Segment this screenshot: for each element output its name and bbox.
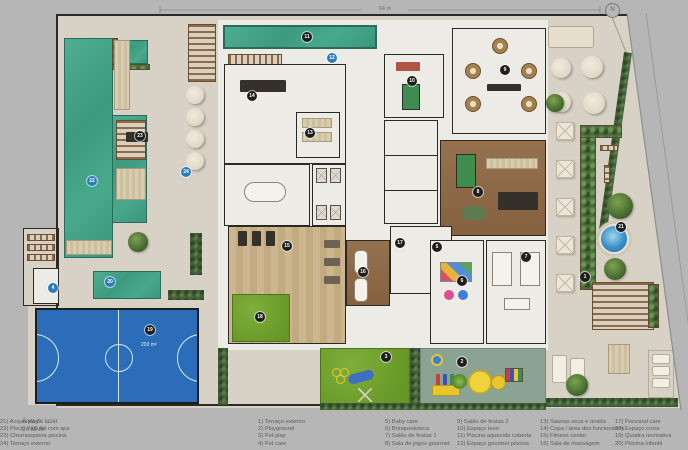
legend-column: 21) Acqua play22) Piscina adulto com spa…	[0, 419, 70, 448]
hedge-court-side	[218, 348, 228, 405]
lounger-bottom-1	[552, 355, 567, 383]
legend-item-22: 22) Piscina adulto com spa	[0, 426, 70, 433]
plan-marker-5: 5	[432, 242, 442, 252]
play-slide-tub	[491, 375, 506, 390]
plan-marker-22: 22	[87, 176, 97, 186]
foosball-table	[396, 62, 420, 71]
square-umbrella-4	[556, 236, 574, 254]
tree-terrace-big	[607, 193, 633, 219]
terrace-bench-1	[600, 145, 618, 151]
legend-column: 5) Baby care6) Brinquedoteca7) Salão de …	[385, 419, 450, 448]
legend-item-24: 24) Terraço externo	[0, 441, 70, 448]
plan-marker-23: 23	[135, 131, 145, 141]
locker-divider-1	[384, 155, 438, 156]
legend-item-16: 16) Sala de massagem	[540, 441, 624, 448]
treadmill-2	[252, 231, 261, 246]
legend-item-10: 10) Espaço teen	[457, 426, 531, 433]
massage-tub-2	[354, 278, 368, 302]
legend-item-20: 20) Piscina infantil	[615, 441, 671, 448]
plan-marker-13: 13	[305, 128, 315, 138]
elevator-shaft-3	[316, 205, 327, 220]
umbrella-1	[186, 86, 204, 104]
party1-table-3	[504, 298, 530, 310]
legend-item-17: 17) Personal care	[615, 419, 671, 426]
terrace-pergola	[592, 282, 654, 330]
round-table-4	[465, 96, 481, 112]
lounger-row-top	[114, 40, 130, 110]
legend-column: 17) Personal care18) Espaço cross19) Qua…	[615, 419, 671, 448]
shower-fixture-2	[652, 366, 670, 376]
treadmill-3	[266, 231, 275, 246]
pet-seesaw	[358, 388, 372, 402]
gourmet-oval-table	[244, 182, 286, 202]
legend-item-5: 5) Baby care	[385, 419, 450, 426]
round-table-3	[521, 63, 537, 79]
round-table-5	[521, 96, 537, 112]
sports-court: 203 m²	[35, 308, 199, 404]
plan-marker-4: 4	[48, 283, 58, 293]
pergola-planter	[648, 284, 659, 328]
wall-top	[57, 14, 627, 16]
tree-kids-pool	[128, 232, 148, 252]
plan-marker-20: 20	[105, 277, 115, 287]
shower-fixture-3	[652, 378, 670, 388]
play-rug	[440, 262, 472, 282]
hedge-walkway-h	[168, 290, 204, 300]
game-room-rug	[462, 206, 486, 220]
staff-long-table	[240, 80, 286, 92]
terrace-planter-v	[580, 125, 596, 290]
adult-pool	[64, 38, 113, 258]
playground-palm	[452, 374, 467, 389]
plan-marker-3: 3	[381, 352, 391, 362]
locker-divider-2	[384, 190, 438, 191]
play-panel	[505, 368, 523, 382]
plan-marker-1: 1	[580, 272, 590, 282]
umbrella-3	[186, 130, 204, 148]
round-table-1	[492, 38, 508, 54]
plan-marker-14: 14	[247, 91, 257, 101]
legend-item-13: 13) Saunas seca e úmida	[540, 419, 624, 426]
legend-item-4: 4) Pet care	[258, 441, 305, 448]
floor-plan: 203 m²	[0, 0, 688, 450]
court-left-arc	[35, 334, 59, 382]
legend-item-14: 14) Copa / área dos funcionários	[540, 426, 624, 433]
game-room-sofa	[498, 192, 538, 210]
playground-ring-toy	[431, 354, 443, 366]
legend-item-2: 2) Playground	[258, 426, 305, 433]
legend-item-23: 23) Churrasqueira piscina	[0, 433, 70, 440]
plan-marker-17: 17	[395, 238, 405, 248]
gym-machine-3	[324, 276, 340, 284]
round-table-2	[465, 63, 481, 79]
pet-ring-3	[336, 375, 345, 384]
legend-item-3: 3) Pet play	[258, 433, 305, 440]
legend: Área de lazer 2.765 m² 1) Terraço extern…	[0, 414, 688, 450]
elevator-shaft-1	[316, 168, 327, 183]
round-chair-4	[583, 92, 605, 114]
buffet-counter	[487, 84, 521, 91]
plan-marker-9: 9	[500, 65, 510, 75]
legend-item-1: 1) Terraço externo	[258, 419, 305, 426]
umbrella-2	[186, 108, 204, 126]
babycare-playroom	[430, 240, 484, 344]
kids-table-blue	[458, 290, 468, 300]
tree-bottom-terrace	[566, 374, 588, 396]
plan-marker-10: 10	[407, 76, 417, 86]
hedge-divider	[410, 348, 420, 404]
tree-terrace-top	[546, 94, 564, 112]
party1-table-1	[492, 252, 512, 286]
round-chair-2	[581, 56, 603, 78]
legend-item-9: 9) Salão de festas 2	[457, 419, 531, 426]
legend-item-18: 18) Espaço cross	[615, 426, 671, 433]
plan-marker-24: 24	[181, 167, 191, 177]
plan-marker-2: 2	[457, 357, 467, 367]
top-dimension-label: 64 m	[362, 6, 408, 12]
pool-pergola-top	[188, 24, 216, 82]
plan-marker-21: 21	[616, 222, 626, 232]
pet-bench-1	[27, 234, 55, 241]
plan-marker-15: 15	[282, 241, 292, 251]
teen-pool-table	[402, 84, 420, 110]
square-umbrella-3	[556, 198, 574, 216]
north-arrow: N	[605, 3, 620, 18]
kids-table-pink	[444, 290, 454, 300]
pool-deck-platform	[116, 168, 146, 200]
court-area-label: 203 m²	[141, 342, 157, 348]
elevator-shaft-2	[330, 168, 341, 183]
shower-fixture-1	[652, 354, 670, 364]
legend-item-11: 11) Piscina aquecida coberta	[457, 433, 531, 440]
plan-marker-19: 19	[145, 325, 155, 335]
legend-item-7: 7) Salão de festas 1	[385, 433, 450, 440]
terrace-bench-2	[604, 165, 610, 183]
terrace-sofa-set	[548, 26, 594, 48]
legend-item-15: 15) Fitness center	[540, 433, 624, 440]
treadmill-1	[238, 231, 247, 246]
legend-item-19: 19) Quadra recreativa	[615, 433, 671, 440]
court-center-circle	[105, 344, 133, 372]
game-room-bar	[486, 158, 538, 169]
gym-machine-1	[324, 240, 340, 248]
plan-marker-12: 12	[327, 53, 337, 63]
hedge-bottom	[320, 403, 546, 410]
square-umbrella-1	[556, 122, 574, 140]
legend-column: 1) Terraço externo2) Playground3) Pet pl…	[258, 419, 305, 448]
plan-marker-18: 18	[255, 312, 265, 322]
plan-marker-6: 6	[457, 276, 467, 286]
terrace-planter-h	[580, 125, 622, 138]
plan-marker-11: 11	[302, 32, 312, 42]
gym-machine-2	[324, 258, 340, 266]
plan-marker-7: 7	[521, 252, 531, 262]
legend-item-21: 21) Acqua play	[0, 419, 70, 426]
court-right-arc	[177, 334, 199, 382]
hedge-walkway-v	[190, 233, 202, 275]
round-chair-1	[551, 58, 571, 78]
kids-pool	[93, 271, 161, 299]
pool-steps	[66, 240, 112, 255]
plan-marker-8: 8	[473, 187, 483, 197]
legend-column: 13) Saunas seca e úmida14) Copa / área d…	[540, 419, 624, 448]
legend-column: 9) Salão de festas 210) Espaço teen11) P…	[457, 419, 531, 448]
plan-marker-16: 16	[358, 267, 368, 277]
legend-item-12: 12) Espaço gourmet piscina	[457, 441, 531, 448]
billiard-table	[456, 154, 476, 188]
tree-below-pool	[604, 258, 626, 280]
square-umbrella-5	[556, 274, 574, 292]
sauna-bench-1	[302, 118, 332, 128]
indoor-heated-pool	[223, 25, 377, 49]
pet-bench-2	[27, 244, 55, 251]
hedge-bottom-right	[546, 398, 678, 407]
locker-rooms	[384, 120, 438, 224]
elevator-shaft-4	[330, 205, 341, 220]
pet-bench-3	[27, 254, 55, 261]
legend-item-6: 6) Brinquedoteca	[385, 426, 450, 433]
legend-item-8: 8) Sala de jogos gourmet	[385, 441, 450, 448]
massage-room	[346, 240, 390, 306]
square-umbrella-2	[556, 160, 574, 178]
terrace-table-deck	[608, 344, 630, 374]
play-carousel	[468, 370, 492, 394]
